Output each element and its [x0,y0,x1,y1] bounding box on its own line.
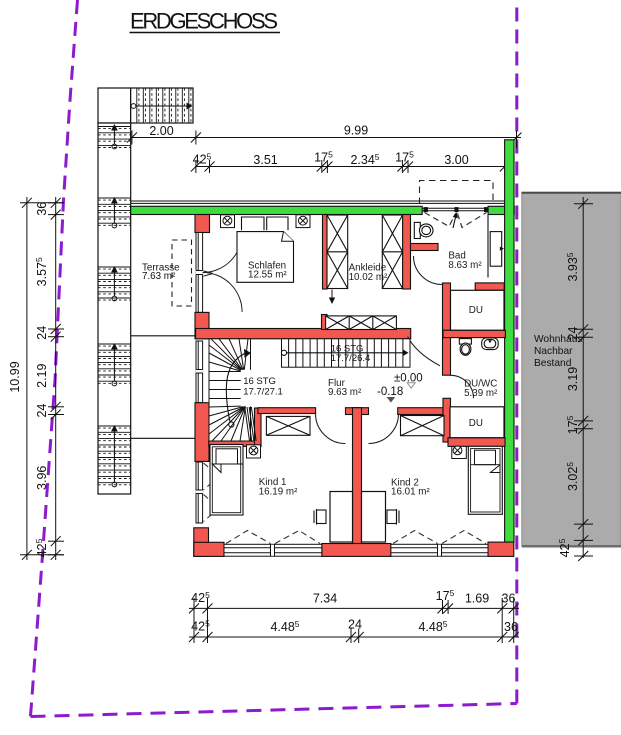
svg-text:3.51: 3.51 [253,153,277,167]
svg-text:12.55 m²: 12.55 m² [248,270,287,281]
svg-text:3.96: 3.96 [35,466,49,490]
svg-text:ERDGESCHOSS: ERDGESCHOSS [130,9,278,34]
svg-text:1.69: 1.69 [465,592,489,606]
svg-text:Nachbar: Nachbar [534,346,573,357]
svg-text:16.19 m²: 16.19 m² [259,487,298,498]
svg-text:17.7/27.1: 17.7/27.1 [243,387,283,398]
svg-text:9.63 m²: 9.63 m² [328,387,362,398]
svg-text:24: 24 [348,618,362,632]
svg-text:2.19: 2.19 [35,363,49,387]
svg-text:2.00: 2.00 [149,124,173,138]
svg-text:16.01 m²: 16.01 m² [391,487,430,498]
svg-text:36: 36 [502,592,516,606]
svg-text:36: 36 [35,202,49,216]
svg-text:3.00: 3.00 [444,153,468,167]
svg-text:DU: DU [469,418,483,429]
svg-text:36: 36 [504,620,518,634]
svg-text:24: 24 [566,327,580,341]
svg-text:3.19: 3.19 [566,367,580,391]
svg-text:16 STG: 16 STG [243,376,276,387]
svg-text:7.63 m²: 7.63 m² [142,271,176,282]
svg-text:17.7/26.4: 17.7/26.4 [331,353,371,364]
svg-text:24: 24 [35,326,49,340]
svg-text:8.63 m²: 8.63 m² [448,260,482,271]
svg-text:DU: DU [469,305,483,316]
svg-text:24: 24 [35,404,49,418]
svg-text:10.99: 10.99 [8,361,22,392]
svg-text:-0.18: -0.18 [377,386,403,398]
svg-text:10.02 m²: 10.02 m² [349,272,388,283]
svg-text:9.99: 9.99 [344,124,368,138]
svg-text:5.39 m²: 5.39 m² [464,388,498,399]
svg-text:7.34: 7.34 [313,592,337,606]
